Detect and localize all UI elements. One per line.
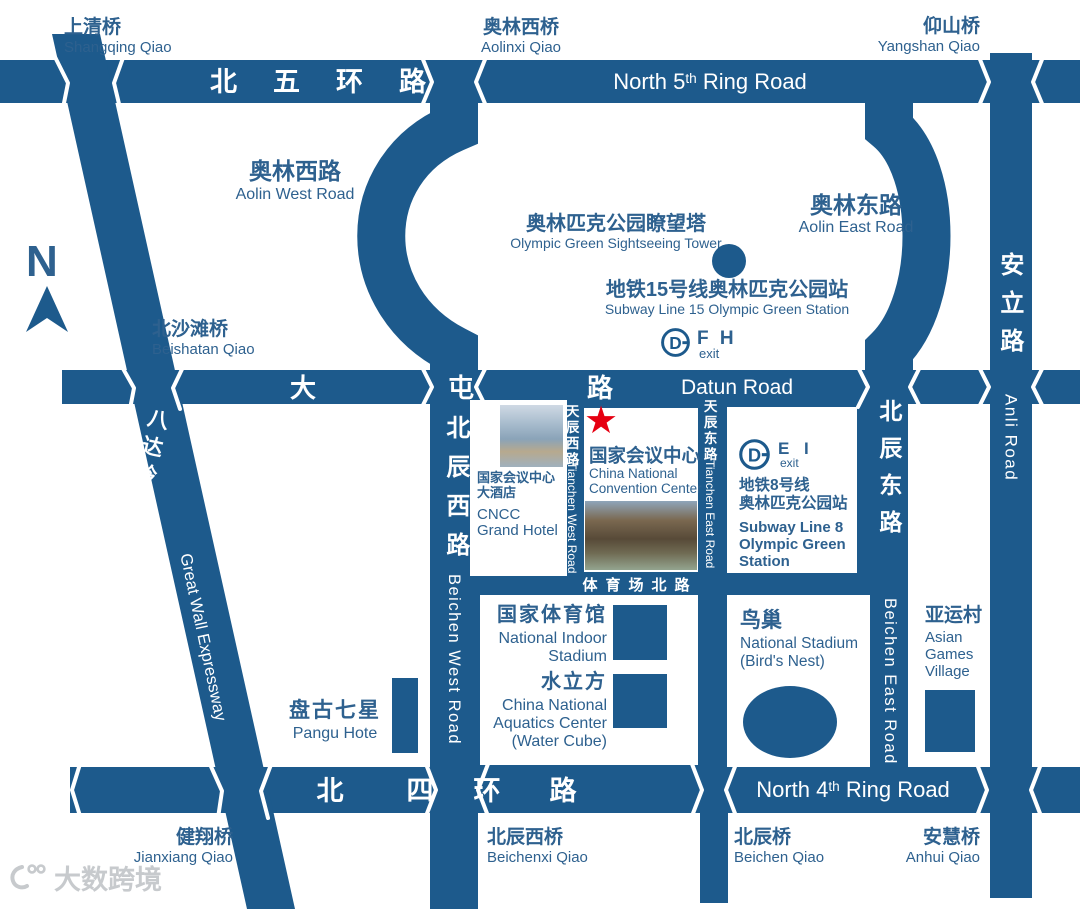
poi-pangu-zh: 盘古七星 [289, 700, 381, 723]
road-label-tianchen-west-en: Tianchen West Road [565, 462, 578, 573]
road-beichen-south-stub [700, 813, 728, 903]
cncc-hotel-en2: Grand Hotel [477, 523, 558, 539]
road-label-beichen-east-zh: 北辰东路 [876, 399, 901, 547]
water-cube-en3: (Water Cube) [512, 733, 607, 750]
subway-logo: D [738, 438, 771, 471]
bridge-aolinxi-zh: 奥林西桥 [483, 18, 559, 39]
bridge-beichenqiao-zh: 北辰桥 [734, 828, 791, 849]
line8-en3: Station [739, 554, 790, 570]
bridge-anhui-en: Anhui Qiao [906, 850, 980, 866]
subway-logo-letter: D [669, 333, 681, 353]
road-label-beichen-east-en: Beichen East Road [880, 598, 898, 765]
ring4-char-4: 路 [550, 777, 577, 806]
cncc-zh: 国家会议中心 [589, 446, 700, 466]
indoor-stadium-en1: National Indoor [498, 630, 607, 647]
road-label-aolin-east-zh: 奥林东路 [810, 193, 902, 218]
asian-games-zh: 亚运村 [925, 606, 982, 627]
bridge-beichenqiao-en: Beichen Qiao [734, 850, 824, 866]
watermark: 大数跨境 [8, 858, 162, 897]
road-label-datun-en: Datun Road [681, 377, 793, 400]
poi-line15-zh: 地铁15号线奥林匹克公园站 [606, 280, 848, 302]
line8-exit-label: exit [780, 457, 799, 470]
card-subway-line8: D E I exit 地铁8号线 奥林匹克公园站 Subway Line 8 O… [727, 407, 857, 573]
cncc-en1: China National [589, 467, 678, 482]
compass-north-letter: N [26, 238, 58, 286]
card-asian-games-village: 亚运村 Asian Games Village [917, 595, 987, 760]
ring4-char-3: 环 [474, 777, 501, 806]
road-label-beichen-west-en: Beichen West Road [444, 574, 462, 745]
road-label-ring4-en: North 4th Ring Road [756, 778, 950, 802]
ring5-en-pre: North 5 [613, 69, 685, 94]
water-cube-en2: Aquatics Center [493, 715, 607, 732]
road-label-tianchen-east-zh: 天辰东路 [701, 399, 716, 463]
road-label-aolin-west-zh: 奥林西路 [249, 159, 341, 184]
ring5-en-post: Ring Road [697, 69, 807, 94]
cncc-star-icon: ★ [584, 402, 618, 440]
indoor-stadium-zh: 国家体育馆 [497, 605, 607, 627]
bridge-beishatan-zh: 北沙滩桥 [152, 320, 228, 341]
subway-logo-letter: D [748, 444, 761, 465]
poi-pangu-en: Pangu Hote [293, 725, 378, 742]
ring4-char-2: 四 [407, 777, 434, 806]
subway-logo: D [660, 327, 691, 358]
card-cncc-grand-hotel: 国家会议中心 大酒店 CNCC Grand Hotel [470, 400, 567, 576]
beijing-olympic-area-map: N 上清桥 Shangqing Qiao 奥林西桥 Aolinxi Qiao 仰… [0, 0, 1080, 909]
birds-nest-zh: 鸟巢 [740, 610, 782, 633]
watermark-logo-icon [8, 861, 48, 895]
indoor-stadium-marker [613, 605, 667, 660]
water-cube-en1: China National [502, 697, 607, 714]
pangu-hotel-building [392, 678, 418, 753]
line8-zh2: 奥林匹克公园站 [739, 496, 848, 513]
bridge-beichenxi-en: Beichenxi Qiao [487, 850, 588, 866]
ring4-en-pre: North 4 [756, 777, 828, 802]
road-label-aolin-west-en: Aolin West Road [236, 186, 355, 203]
bridge-yangshan-en: Yangshan Qiao [878, 39, 980, 55]
birds-nest-en2: (Bird's Nest) [740, 654, 825, 671]
bridge-beishatan-en: Beishatan Qiao [152, 342, 255, 358]
cncc-hotel-en1: CNCC [477, 507, 520, 523]
road-north-5th-ring [0, 60, 1080, 103]
water-cube-zh: 水立方 [541, 672, 607, 694]
bridge-yangshan-zh: 仰山桥 [923, 17, 980, 38]
road-label-stadium-north: 体育场北路 [582, 578, 697, 594]
bridge-shangqing-en: Shangqing Qiao [64, 40, 172, 56]
bridge-aolinxi-en: Aolinxi Qiao [481, 40, 561, 56]
ring4-char-1: 北 [317, 777, 344, 806]
road-label-beichen-west-zh: 北辰西路 [442, 415, 468, 571]
ring4-en-sup: th [828, 779, 839, 794]
asian-games-en3: Village [925, 664, 970, 680]
asian-games-marker [925, 690, 975, 752]
road-label-tianchen-west-zh: 天辰西路 [563, 404, 578, 468]
bridge-jianxiang-zh: 健翔桥 [176, 828, 233, 849]
asian-games-en1: Asian [925, 630, 963, 646]
watermark-text: 大数跨境 [54, 858, 162, 897]
line8-en1: Subway Line 8 [739, 520, 843, 536]
road-label-ring5-en: North 5th Ring Road [613, 70, 807, 94]
birds-nest-en1: National Stadium [740, 636, 858, 653]
ring4-en-post: Ring Road [840, 777, 950, 802]
cncc-grand-hotel-photo [500, 405, 563, 467]
poi-tower-en: Olympic Green Sightseeing Tower [510, 236, 721, 251]
road-label-aolin-east-en: Aolin East Road [799, 219, 914, 236]
line8-en2: Olympic Green [739, 537, 846, 553]
cncc-building-photo [585, 501, 697, 570]
line15-exit-label: exit [699, 347, 719, 361]
line8-zh1: 地铁8号线 [739, 478, 810, 495]
bridge-beichenxi-zh: 北辰西桥 [487, 828, 563, 849]
card-birds-nest: 鸟巢 National Stadium (Bird's Nest) [727, 595, 870, 767]
birds-nest-marker [743, 686, 837, 758]
poi-tower-zh: 奥林匹克公园瞭望塔 [526, 214, 706, 236]
datun-char-3: 路 [587, 374, 613, 402]
bridge-anhui-zh: 安慧桥 [923, 828, 980, 849]
ring5-en-sup: th [685, 71, 696, 86]
datun-char-2: 屯 [448, 374, 474, 402]
road-label-tianchen-east-en: Tianchen East Road [703, 460, 716, 568]
asian-games-en2: Games [925, 647, 973, 663]
road-aolin-west-loop [381, 60, 454, 388]
compass-arrow-icon [24, 286, 70, 334]
card-stadium-watercube: 国家体育馆 National Indoor Stadium 水立方 China … [480, 595, 698, 765]
road-label-anli-zh: 安立路 [996, 252, 1022, 366]
cncc-hotel-zh2: 大酒店 [477, 486, 516, 500]
cncc-hotel-zh1: 国家会议中心 [477, 471, 555, 485]
poi-line15-en: Subway Line 15 Olympic Green Station [605, 302, 849, 317]
datun-char-1: 大 [290, 374, 316, 402]
water-cube-marker [613, 674, 667, 728]
road-label-anli-en: Anli Road [1001, 394, 1019, 481]
bridge-shangqing-zh: 上清桥 [64, 18, 121, 39]
road-label-ring5-zh: 北五环路 [210, 68, 462, 97]
card-cncc: ★ 国家会议中心 China National Convention Cente… [584, 408, 698, 572]
indoor-stadium-en2: Stadium [548, 648, 607, 665]
cncc-en2: Convention Center [589, 482, 702, 497]
